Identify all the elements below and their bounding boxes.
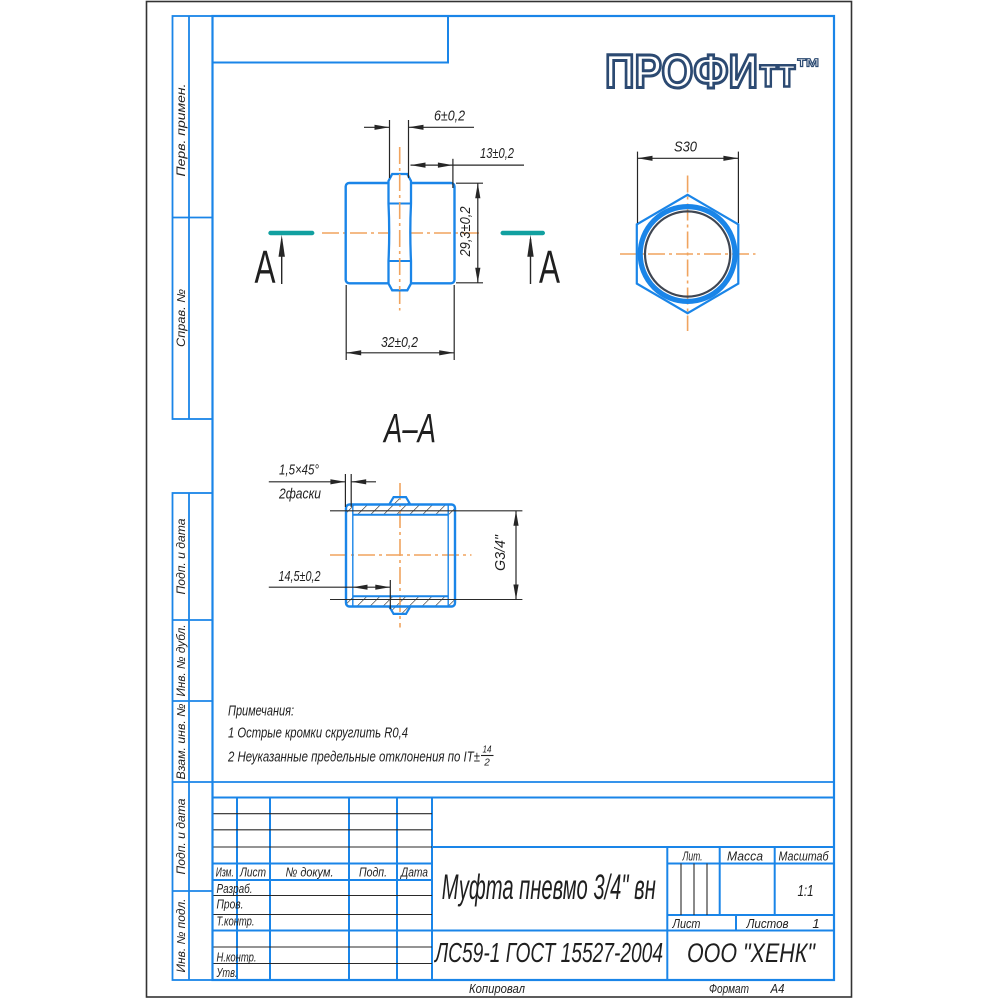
svg-text:Листов: Листов <box>746 916 789 931</box>
svg-text:14,5±0,2: 14,5±0,2 <box>279 568 321 585</box>
svg-text:Подп. и дата: Подп. и дата <box>176 519 188 595</box>
svg-text:А: А <box>539 241 560 293</box>
svg-text:Дата: Дата <box>399 865 428 880</box>
svg-text:Подп.: Подп. <box>359 865 387 880</box>
svg-text:Н.контр.: Н.контр. <box>217 950 257 965</box>
svg-text:2 Неуказанные предельные откло: 2 Неуказанные предельные отклонения по I… <box>227 750 480 766</box>
svg-text:Т.контр.: Т.контр. <box>217 914 255 929</box>
svg-text:Формат: Формат <box>709 982 749 996</box>
svg-text:29,3±0,2: 29,3±0,2 <box>457 206 474 257</box>
svg-text:ПРОФИ: ПРОФИ <box>605 45 758 98</box>
svg-text:Изм.: Изм. <box>216 865 234 880</box>
svg-text:Масштаб: Масштаб <box>779 849 830 864</box>
svg-text:Пров.: Пров. <box>217 897 244 912</box>
svg-text:Разраб.: Разраб. <box>217 881 253 896</box>
svg-text:№ докум.: № докум. <box>286 865 334 880</box>
svg-text:Лист: Лист <box>672 916 701 931</box>
svg-text:А: А <box>255 241 276 293</box>
svg-text:6±0,2: 6±0,2 <box>434 108 466 125</box>
svg-text:1: 1 <box>812 916 819 931</box>
svg-text:Инв. № дубл.: Инв. № дубл. <box>176 625 188 697</box>
svg-text:Лит.: Лит. <box>682 849 703 864</box>
svg-text:А4: А4 <box>770 982 785 996</box>
svg-text:1,5×45°: 1,5×45° <box>279 462 319 479</box>
svg-text:Масса: Масса <box>727 849 763 864</box>
svg-text:Инв. № подл.: Инв. № подл. <box>176 899 188 973</box>
svg-text:13±0,2: 13±0,2 <box>480 145 514 162</box>
svg-text:Утв.: Утв. <box>216 965 238 980</box>
svg-text:™: ™ <box>796 54 821 82</box>
svg-text:Копировал: Копировал <box>469 982 525 996</box>
svg-text:Примечания:: Примечания: <box>228 704 294 720</box>
svg-text:S30: S30 <box>674 139 698 156</box>
svg-text:1:1: 1:1 <box>798 883 814 900</box>
svg-text:Перв. примен.: Перв. примен. <box>176 84 188 177</box>
svg-text:32±0,2: 32±0,2 <box>381 334 419 351</box>
svg-text:Подп. и дата: Подп. и дата <box>176 799 188 875</box>
svg-text:2фаски: 2фаски <box>278 486 321 503</box>
svg-text:Взам. инв. №: Взам. инв. № <box>176 703 188 780</box>
svg-text:1 Острые кромки скруглить R0,4: 1 Острые кромки скруглить R0,4 <box>228 726 408 742</box>
svg-text:2: 2 <box>483 758 490 769</box>
svg-text:ЛС59-1 ГОСТ 15527-2004: ЛС59-1 ГОСТ 15527-2004 <box>434 937 663 968</box>
svg-text:А–А: А–А <box>382 405 436 451</box>
svg-text:ООО "ХЕНК": ООО "ХЕНК" <box>687 938 816 968</box>
svg-text:Лист: Лист <box>239 865 266 880</box>
svg-text:G3/4": G3/4" <box>492 534 509 571</box>
svg-text:тт: тт <box>759 52 796 96</box>
svg-text:14: 14 <box>483 745 492 756</box>
svg-text:Муфта пневмо 3/4" вн: Муфта пневмо 3/4" вн <box>442 868 656 907</box>
svg-text:Справ. №: Справ. № <box>176 288 188 347</box>
